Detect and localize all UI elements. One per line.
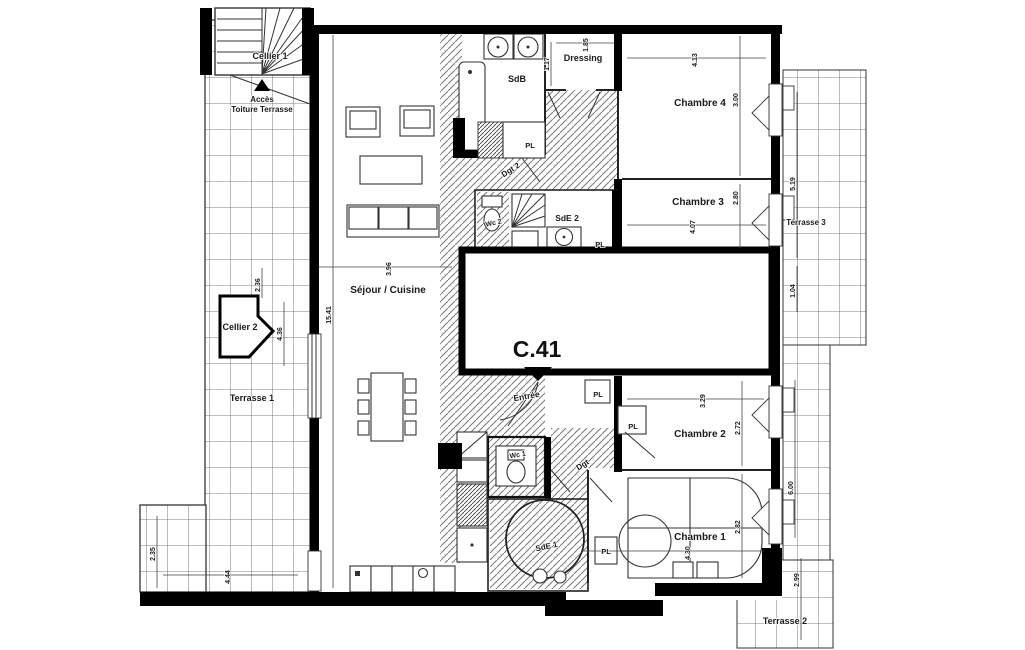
dim-cellier2-top: 2.36: [255, 278, 262, 292]
window-tag-box: [783, 500, 794, 524]
wall-left: [310, 25, 319, 600]
dressing-right-wall: [614, 33, 622, 91]
kitchen-cabinet: [371, 566, 392, 592]
wall-top: [310, 25, 782, 34]
window-chambre4: [769, 84, 782, 136]
wall-bottom-left: [140, 592, 566, 606]
window-chambre2: [769, 386, 782, 438]
dim-terrasse2-h: 2.99: [794, 573, 801, 587]
duct-box: [478, 122, 503, 158]
kitchen-cabinet: [413, 566, 434, 592]
wall-bottom-step: [545, 600, 663, 616]
label-pl: PL: [595, 240, 605, 249]
dim-dressing-w: 1.85: [583, 38, 590, 52]
dim-chambre4-w: 4.13: [692, 53, 699, 67]
pl-closet-top: [503, 122, 545, 158]
stair-wall-left: [200, 8, 212, 75]
label-sde2: SdE 2: [555, 213, 579, 223]
label-sejour: Séjour / Cuisine: [350, 285, 426, 296]
window-chambre1: [769, 489, 782, 544]
wall-stub: [438, 443, 462, 469]
dining-chair: [405, 421, 416, 435]
coffee-table: [360, 156, 422, 184]
floor-plan-svg: C.41 Cellier 1: [0, 0, 1025, 650]
nightstand: [673, 562, 693, 578]
terrace-3-lower: [783, 345, 830, 560]
tub-drain-icon: [468, 70, 472, 74]
basin-drain-icon: [497, 46, 500, 49]
label-pl: PL: [601, 547, 611, 556]
window-tag-box: [783, 196, 794, 220]
kitchen-cabinet: [350, 566, 371, 592]
dim-terrasse3-h: 5.19: [790, 177, 797, 191]
window-tag-box: [783, 86, 794, 110]
wall-stub: [545, 437, 551, 499]
label-pl: PL: [525, 141, 535, 150]
dim-chambre3-w: 4.07: [690, 220, 697, 234]
kitchen-cabinet: [392, 566, 413, 592]
label-chambre2: Chambre 2: [674, 429, 726, 440]
dining-chair: [358, 379, 369, 393]
window-tag-box: [783, 388, 794, 412]
dining-table: [371, 373, 403, 441]
unit-number: C.41: [513, 336, 562, 362]
label-chambre1: Chambre 1: [674, 532, 726, 543]
dim-terrasse1-w: 4.44: [225, 570, 232, 584]
label-pl: PL: [628, 422, 638, 431]
label-terrasse1: Terrasse 1: [230, 393, 274, 403]
unit-box: C.41: [462, 250, 772, 381]
basin-drain-icon: [527, 46, 530, 49]
label-terrasse3: Terrasse 3: [786, 218, 826, 227]
label-dressing: Dressing: [564, 53, 603, 63]
terrace-3-upper: [783, 70, 866, 345]
floor-plan-canvas: C.41 Cellier 1: [0, 0, 1025, 650]
terrace-3-area: [783, 70, 866, 560]
wall-stub: [453, 118, 465, 158]
dim-chambre1-h: 2.82: [735, 520, 742, 534]
wc2-cistern: [482, 196, 502, 207]
dim-cellier2-side: 4.36: [277, 327, 284, 341]
sde1-fixture: [554, 571, 566, 583]
sde1-fixture: [533, 569, 547, 583]
label-chambre3: Chambre 3: [672, 197, 724, 208]
dining-chair: [358, 421, 369, 435]
label-cellier1: Cellier 1: [252, 51, 287, 61]
dim-chambre4-h: 3.00: [733, 93, 740, 107]
nightstand: [697, 562, 718, 578]
label-terrasse2: Terrasse 2: [763, 616, 807, 626]
sde2-right-wall: [612, 190, 620, 250]
basin-drain-icon: [563, 236, 566, 239]
dim-dressing-h: 1.17: [544, 57, 551, 71]
dim-chambre3-h: 2.80: [733, 191, 740, 205]
appliance-knob-icon: [470, 543, 473, 546]
dim-sejour-h: 15.41: [326, 306, 333, 324]
label-chambre4: Chambre 4: [674, 98, 726, 109]
dim-terrasse1-h: 2.35: [150, 547, 157, 561]
window-chambre3: [769, 194, 782, 246]
unit-box-rect: [462, 250, 772, 372]
sde2-cabinet: [512, 231, 538, 248]
label-cellier2: Cellier 2: [222, 322, 257, 332]
appliance-fridge: [457, 484, 487, 526]
sofa: [347, 205, 439, 237]
dining-chair: [405, 379, 416, 393]
dim-chambre1-w: 4.30: [685, 546, 692, 560]
dim-chambre2-h: 2.72: [735, 421, 742, 435]
window-sejour: [308, 334, 321, 418]
window-sejour-low: [308, 551, 321, 591]
kitchen-cabinet: [434, 566, 455, 592]
label-acces-1: Accès: [250, 95, 274, 104]
dim-terrasse3-low: 1.04: [790, 284, 797, 298]
dim-sejour-w: 3.96: [386, 262, 393, 276]
dim-terrasse2-side: 6.00: [788, 481, 795, 495]
dining-chair: [358, 400, 369, 414]
hob-icon: [355, 571, 360, 576]
label-sdb: SdB: [508, 74, 527, 84]
wall-corner-block: [762, 548, 782, 596]
label-acces-2: Toiture Terrasse: [231, 105, 293, 114]
dining-chair: [405, 400, 416, 414]
label-pl: PL: [593, 390, 603, 399]
dim-chambre2-w: 3.29: [700, 394, 707, 408]
